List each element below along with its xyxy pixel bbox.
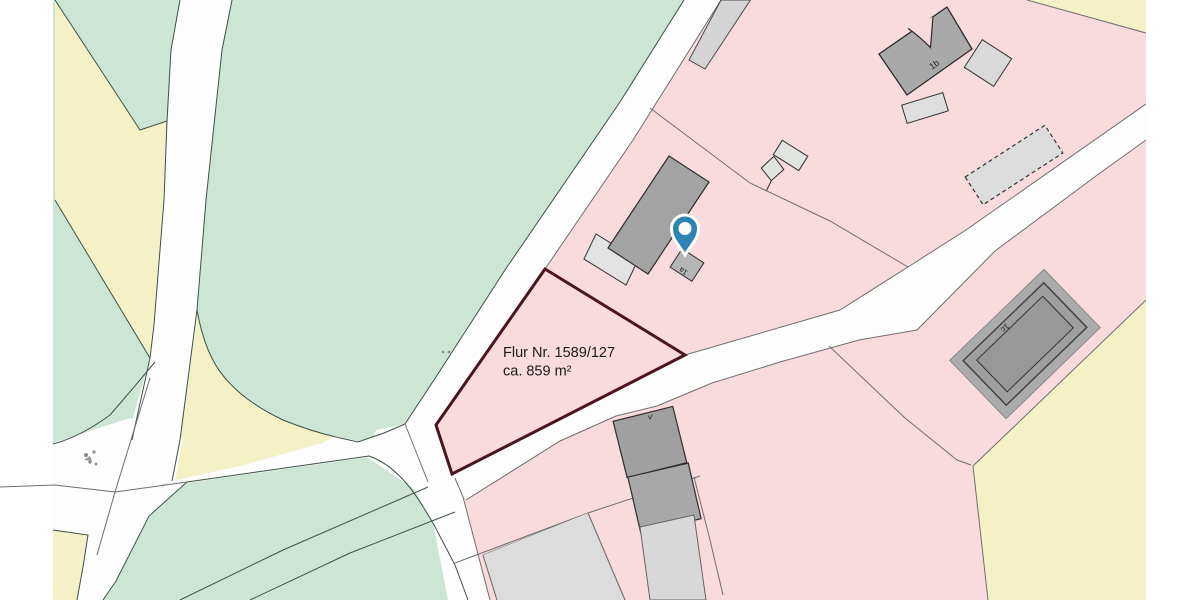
svg-text:ca. 859 m²: ca. 859 m²	[503, 364, 572, 380]
svg-text:Flur Nr. 1589/127: Flur Nr. 1589/127	[503, 345, 615, 361]
